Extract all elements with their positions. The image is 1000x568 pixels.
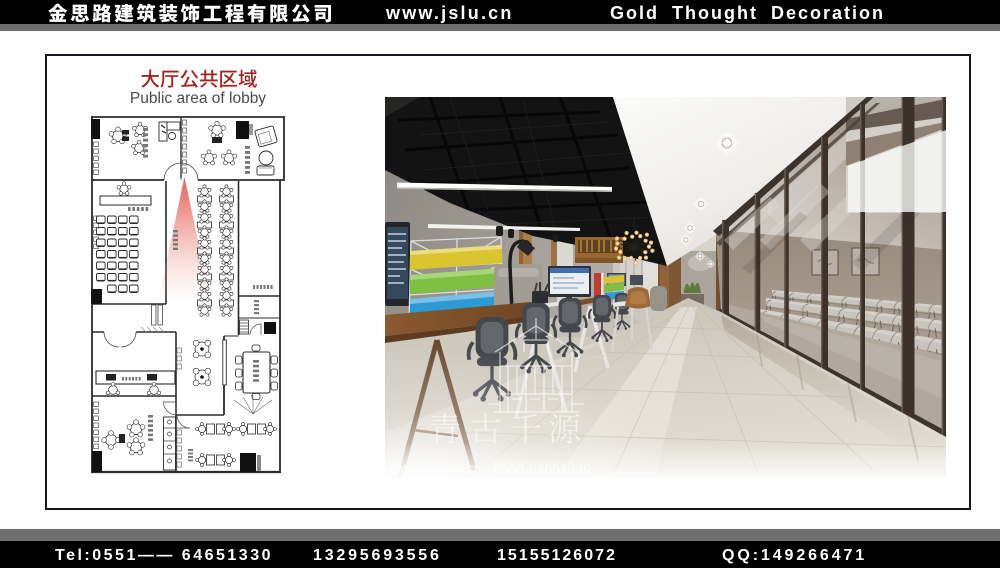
svg-text:www.jslu.cn: www.jslu.cn bbox=[385, 3, 514, 23]
svg-text:13295693556: 13295693556 bbox=[313, 547, 442, 564]
svg-text:15155126072: 15155126072 bbox=[497, 547, 617, 564]
svg-text:Public area of lobby: Public area of lobby bbox=[130, 90, 266, 107]
svg-text:Tel:0551—— 64651330: Tel:0551—— 64651330 bbox=[55, 547, 273, 564]
svg-text:Gold Thought Decoration: Gold Thought Decoration bbox=[610, 3, 885, 23]
svg-text:QQ:149266471: QQ:149266471 bbox=[722, 547, 867, 564]
svg-text:www.qushaji.cn 0550-64651330: www.qushaji.cn 0550-64651330 bbox=[384, 460, 591, 476]
